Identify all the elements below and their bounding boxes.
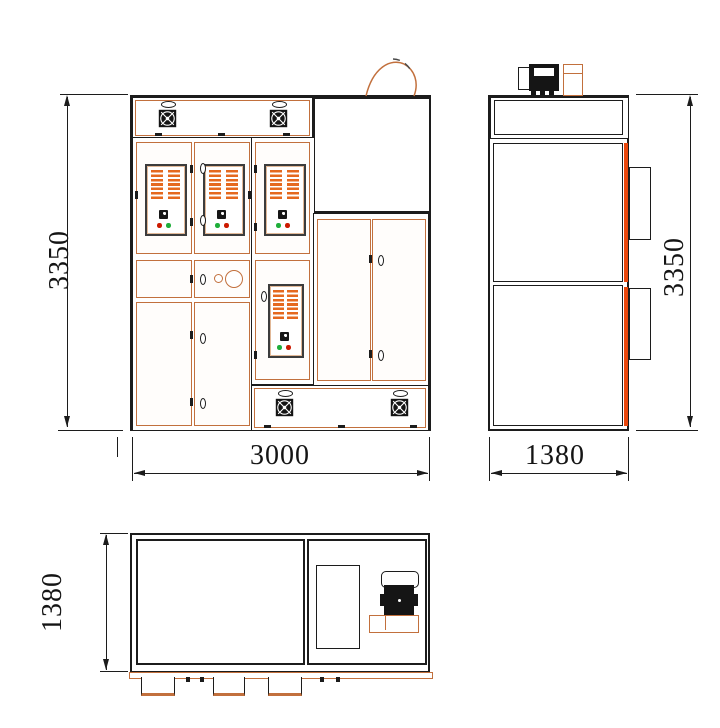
- side-bracket-upper: [629, 167, 651, 240]
- dimension-line: [106, 535, 107, 670]
- louver-door-3: [255, 142, 310, 254]
- mount-tick: [336, 677, 340, 682]
- extension-line: [628, 437, 629, 481]
- extension-line: [60, 94, 128, 95]
- mount-tick: [320, 677, 324, 682]
- motor-mount-tab: [380, 594, 385, 606]
- front-top-fan-section: [132, 97, 313, 139]
- duct-hose-arc: [330, 55, 425, 97]
- motor-mount-tab: [413, 594, 418, 606]
- louver-control-panel: [145, 164, 187, 236]
- hinge-icon: [135, 191, 138, 199]
- lift-handle-icon: [278, 390, 293, 397]
- extension-line: [429, 437, 430, 481]
- mount-mark: [218, 133, 225, 136]
- side-view: [488, 95, 629, 431]
- indicator-green: [276, 223, 281, 228]
- base-plate-divider: [385, 616, 386, 630]
- small-knob: [214, 274, 223, 283]
- right-door-1: [317, 219, 371, 381]
- hinge-icon: [254, 223, 257, 231]
- louver-vent: [226, 170, 238, 200]
- dim-label-side-width: 1380: [505, 441, 605, 471]
- louver-door-2: [194, 142, 250, 254]
- arrowhead-left: [491, 470, 502, 476]
- louver-vent: [168, 170, 180, 200]
- top-inner-duct-opening: [316, 565, 360, 649]
- side-panel-upper: [493, 143, 623, 282]
- indicator-red: [224, 223, 229, 228]
- louver-vent: [270, 170, 282, 200]
- top-motor-assembly: [380, 570, 420, 620]
- right-door-2: [372, 219, 426, 381]
- duct-icon: [563, 64, 583, 96]
- side-accent-strip: [624, 143, 628, 282]
- hinge-icon: [254, 165, 257, 173]
- louver-control-panel: [268, 284, 304, 358]
- hinge-icon: [190, 331, 193, 339]
- dim-label-side-height: 3350: [660, 212, 690, 322]
- dim-label-top-depth: 1380: [38, 547, 68, 657]
- arrowhead-left: [134, 470, 145, 476]
- display-unit: [278, 210, 287, 219]
- mount-mark: [155, 133, 162, 136]
- lift-handle-icon: [393, 390, 408, 397]
- arrowhead-down: [103, 659, 109, 670]
- louver-door-1: [136, 142, 192, 254]
- side-bracket-lower: [629, 288, 651, 360]
- louver-control-panel: [203, 164, 245, 236]
- top-view: [130, 533, 430, 673]
- side-top-section: [490, 97, 629, 139]
- display-unit: [217, 210, 226, 219]
- arrowhead-down: [687, 416, 693, 427]
- drawing-canvas: 3350 3000 3350 1380 1380: [0, 0, 720, 728]
- fan-icon: [269, 109, 288, 128]
- cabinet-foot: [141, 677, 175, 696]
- hinge-icon: [190, 218, 193, 226]
- front-left-bay: [132, 137, 253, 431]
- louver-vent: [287, 290, 298, 320]
- front-blank-panel: [313, 97, 431, 213]
- fan-icon: [390, 398, 409, 417]
- tall-door-2: [194, 302, 250, 426]
- arrowhead-up: [64, 95, 70, 106]
- fan-icon: [275, 398, 294, 417]
- front-right-bay: [313, 213, 429, 387]
- front-view: [130, 95, 431, 431]
- lift-handle-icon: [161, 101, 176, 108]
- indicator-red: [157, 223, 162, 228]
- mount-mark: [283, 133, 290, 136]
- extension-line-stub: [117, 437, 118, 457]
- mount-mark: [410, 425, 417, 428]
- extension-line: [636, 430, 698, 431]
- side-accent-strip: [624, 287, 628, 426]
- small-door-1: [136, 260, 192, 298]
- louver-vent: [151, 170, 163, 200]
- large-knob: [225, 270, 243, 288]
- indicator-red: [286, 345, 291, 350]
- mount-mark: [338, 425, 345, 428]
- hinge-icon: [190, 275, 193, 283]
- louver-control-panel: [264, 164, 306, 236]
- door-handle-icon: [200, 215, 206, 226]
- louver-vent: [209, 170, 221, 200]
- indicator-green: [215, 223, 220, 228]
- door-handle-icon: [200, 274, 206, 285]
- indicator-red: [285, 223, 290, 228]
- louver-vent: [273, 290, 284, 320]
- indicator-green: [166, 223, 171, 228]
- fan-icon: [158, 109, 177, 128]
- door-handle-icon: [261, 291, 267, 302]
- motor-label-plate: [534, 68, 554, 76]
- mount-mark: [264, 425, 271, 428]
- arrowhead-down: [64, 416, 70, 427]
- small-door-2: [194, 260, 250, 298]
- motor-icon: [384, 585, 414, 618]
- dimension-line: [491, 473, 627, 474]
- hinge-icon: [190, 165, 193, 173]
- arrowhead-right: [417, 470, 428, 476]
- lift-handle-icon: [272, 101, 287, 108]
- extension-line: [489, 437, 490, 481]
- door-handle-icon: [200, 398, 206, 409]
- arrowhead-up: [103, 534, 109, 545]
- front-bottom-fan-section: [251, 385, 429, 431]
- hinge-icon: [254, 351, 257, 359]
- motor-shaft-dot: [398, 599, 401, 602]
- mount-tick: [186, 677, 190, 682]
- side-top-inner-panel: [494, 100, 623, 135]
- dimension-line: [134, 473, 428, 474]
- front-middle-bay: [251, 137, 315, 385]
- door-handle-icon: [378, 350, 384, 361]
- arrowhead-right: [616, 470, 627, 476]
- indicator-green: [277, 345, 282, 350]
- display-unit: [159, 210, 168, 219]
- side-panel-lower: [493, 285, 623, 426]
- cabinet-foot: [213, 677, 245, 696]
- extension-line: [58, 430, 123, 431]
- extension-line: [132, 437, 133, 481]
- display-unit: [280, 332, 289, 341]
- mount-tick: [200, 677, 204, 682]
- tall-door-1: [136, 302, 192, 426]
- motor-base-plate: [369, 615, 419, 633]
- dim-label-front-height: 3350: [45, 205, 75, 315]
- cabinet-foot: [268, 677, 302, 696]
- motor-icon: [529, 64, 559, 91]
- door-handle-icon: [200, 333, 206, 344]
- top-left-compartment: [136, 539, 305, 665]
- duct-divider-line: [564, 73, 582, 74]
- motor-foot: [540, 91, 545, 95]
- arrowhead-up: [687, 95, 693, 106]
- hinge-icon: [190, 398, 193, 406]
- louver-vent: [287, 170, 299, 200]
- roof-motor-assembly: [518, 64, 582, 95]
- door-handle-icon: [378, 255, 384, 266]
- dim-label-front-width: 3000: [230, 441, 330, 471]
- extension-line: [100, 671, 128, 672]
- louver-door-4: [255, 260, 310, 380]
- motor-foot: [531, 91, 536, 95]
- motor-foot: [549, 91, 554, 95]
- dimension-line: [690, 97, 691, 427]
- door-handle-icon: [200, 163, 206, 174]
